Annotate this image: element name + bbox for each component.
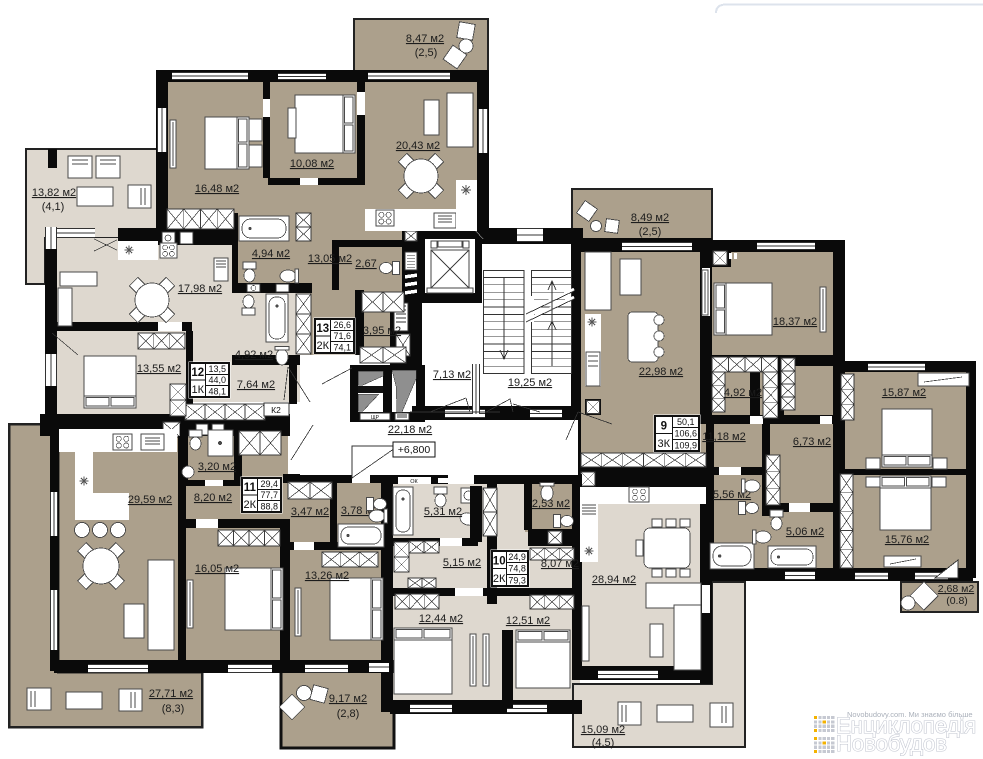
svg-text:50,1: 50,1 xyxy=(677,417,695,427)
svg-text:ЩР: ЩР xyxy=(371,415,380,421)
svg-text:(2,8): (2,8) xyxy=(337,708,360,720)
svg-text:17,98 м2: 17,98 м2 xyxy=(178,283,222,295)
svg-text:8,47 м2: 8,47 м2 xyxy=(406,33,444,45)
svg-text:3,20 м2: 3,20 м2 xyxy=(198,461,236,473)
svg-text:К2: К2 xyxy=(271,405,281,415)
svg-text:7,64 м2: 7,64 м2 xyxy=(237,379,275,391)
svg-text:16,05 м2: 16,05 м2 xyxy=(195,563,239,575)
svg-text:8,20 м2: 8,20 м2 xyxy=(194,492,232,504)
svg-text:10: 10 xyxy=(493,555,506,567)
svg-text:88,8: 88,8 xyxy=(261,502,279,512)
svg-text:74,1: 74,1 xyxy=(334,343,352,353)
svg-text:109,9: 109,9 xyxy=(675,440,698,450)
svg-text:15,76 м2: 15,76 м2 xyxy=(885,534,929,546)
svg-text:2,68 м2: 2,68 м2 xyxy=(938,583,975,595)
svg-text:77,7: 77,7 xyxy=(261,490,279,500)
svg-text:15,87 м2: 15,87 м2 xyxy=(882,387,926,399)
svg-text:12,44 м2: 12,44 м2 xyxy=(419,613,463,625)
svg-text:(2,5): (2,5) xyxy=(415,47,438,59)
svg-text:8,49 м2: 8,49 м2 xyxy=(631,212,669,224)
svg-text:4,92 м2: 4,92 м2 xyxy=(724,387,762,399)
svg-text:13,05 м2: 13,05 м2 xyxy=(308,253,352,265)
svg-text:19,25 м2: 19,25 м2 xyxy=(508,377,552,389)
svg-text:71,6: 71,6 xyxy=(334,331,352,341)
svg-text:Новобудов: Новобудов xyxy=(836,731,947,756)
svg-text:79,3: 79,3 xyxy=(508,575,526,585)
svg-text:2,67: 2,67 xyxy=(355,258,376,270)
svg-text:29,4: 29,4 xyxy=(261,479,279,489)
svg-text:9: 9 xyxy=(661,420,667,432)
svg-text:8,07 м2: 8,07 м2 xyxy=(541,558,579,570)
svg-text:106,6: 106,6 xyxy=(675,429,698,439)
svg-text:13,82 м2: 13,82 м2 xyxy=(32,187,76,199)
svg-text:5,15 м2: 5,15 м2 xyxy=(443,557,481,569)
svg-text:11: 11 xyxy=(244,482,257,494)
svg-text:12: 12 xyxy=(191,367,204,379)
svg-text:20,43 м2: 20,43 м2 xyxy=(396,140,440,152)
svg-text:(4,5): (4,5) xyxy=(592,737,615,749)
svg-text:ОК: ОК xyxy=(410,479,418,485)
svg-text:26,6: 26,6 xyxy=(334,320,352,330)
svg-text:12,51 м2: 12,51 м2 xyxy=(506,615,550,627)
svg-text:16,48 м2: 16,48 м2 xyxy=(195,183,239,195)
svg-text:+6,800: +6,800 xyxy=(398,444,431,456)
svg-text:74,8: 74,8 xyxy=(508,564,526,574)
svg-text:13,26 м2: 13,26 м2 xyxy=(305,570,349,582)
svg-text:22,18 м2: 22,18 м2 xyxy=(388,424,432,436)
svg-text:5,31 м2: 5,31 м2 xyxy=(424,506,462,518)
svg-text:3,47 м2: 3,47 м2 xyxy=(291,506,329,518)
svg-text:28,94 м2: 28,94 м2 xyxy=(592,574,636,586)
svg-text:13,5: 13,5 xyxy=(209,364,227,374)
svg-text:3,95 м2: 3,95 м2 xyxy=(363,325,401,337)
svg-text:22,98 м2: 22,98 м2 xyxy=(639,366,683,378)
svg-text:11,18 м2: 11,18 м2 xyxy=(702,431,745,443)
svg-text:2К: 2К xyxy=(493,573,506,585)
svg-text:27,71 м2: 27,71 м2 xyxy=(149,688,193,700)
svg-text:6,73 м2: 6,73 м2 xyxy=(793,436,831,448)
svg-text:3К: 3К xyxy=(658,438,671,450)
svg-text:(4,1): (4,1) xyxy=(42,201,65,213)
svg-text:13,55 м2: 13,55 м2 xyxy=(137,363,181,375)
svg-text:5,56 м2: 5,56 м2 xyxy=(713,489,751,501)
svg-text:(2,5): (2,5) xyxy=(639,226,662,238)
svg-text:1К: 1К xyxy=(192,384,205,396)
svg-text:13: 13 xyxy=(316,323,329,335)
svg-text:(8,3): (8,3) xyxy=(162,703,185,715)
svg-text:44,0: 44,0 xyxy=(209,375,227,385)
svg-text:5,06 м2: 5,06 м2 xyxy=(786,526,824,538)
svg-text:4,92 м2: 4,92 м2 xyxy=(235,349,273,361)
svg-text:2К: 2К xyxy=(244,499,257,511)
svg-text:48,1: 48,1 xyxy=(209,387,227,397)
svg-text:2,53 м2: 2,53 м2 xyxy=(532,498,570,510)
svg-text:(0.8): (0.8) xyxy=(946,595,968,607)
svg-text:15,09 м2: 15,09 м2 xyxy=(581,724,625,736)
svg-text:24,9: 24,9 xyxy=(508,552,526,562)
svg-text:29,59 м2: 29,59 м2 xyxy=(128,494,172,506)
svg-text:9,17 м2: 9,17 м2 xyxy=(329,693,367,705)
svg-text:2К: 2К xyxy=(317,340,330,352)
svg-text:4,94 м2: 4,94 м2 xyxy=(252,248,290,260)
svg-text:7,13 м2: 7,13 м2 xyxy=(433,369,471,381)
svg-text:18,37 м2: 18,37 м2 xyxy=(773,316,817,328)
svg-text:10,08 м2: 10,08 м2 xyxy=(290,158,334,170)
